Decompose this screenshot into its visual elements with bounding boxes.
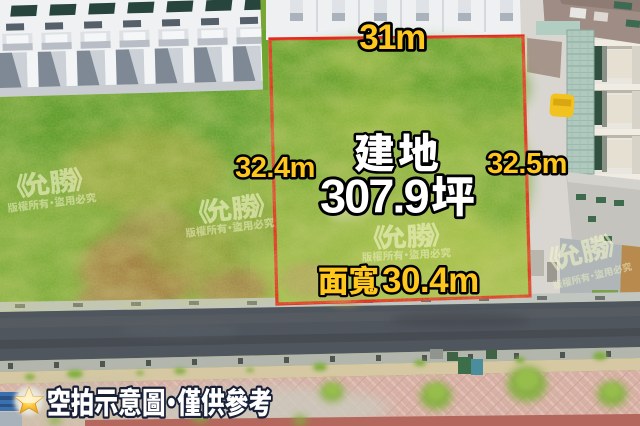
svg-text:32.4m: 32.4m — [235, 152, 315, 184]
svg-text:31m: 31m — [359, 18, 425, 57]
svg-text:307.9: 307.9 — [320, 170, 428, 223]
svg-text:30.4m: 30.4m — [382, 261, 479, 300]
svg-text:32.5m: 32.5m — [487, 148, 567, 180]
